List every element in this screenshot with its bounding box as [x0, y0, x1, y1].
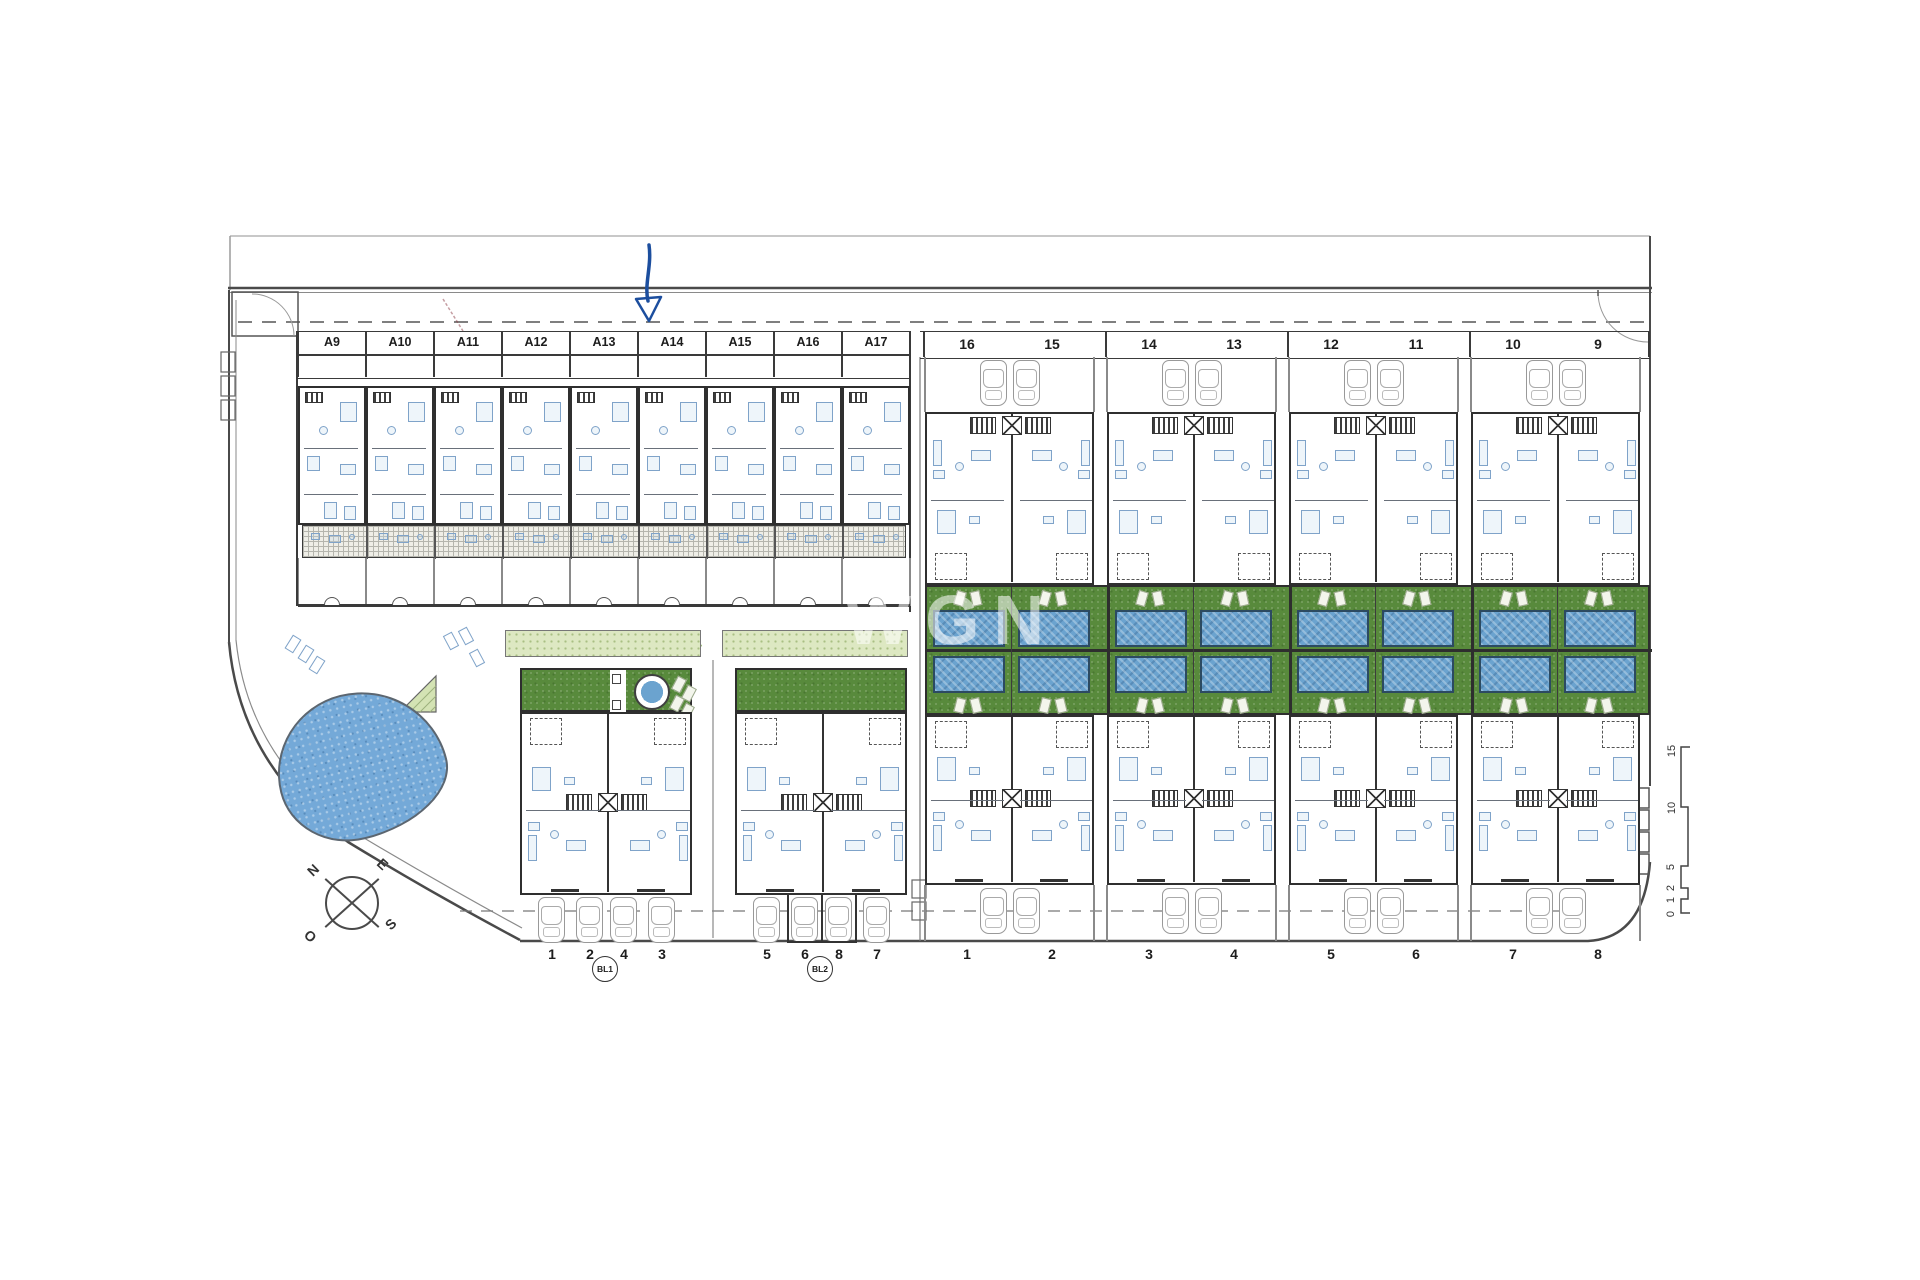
furniture-bed [612, 402, 629, 422]
driveway-wall [1275, 357, 1277, 412]
partition-line [931, 500, 1004, 501]
furniture-terrace [757, 534, 763, 540]
sun-lounger-icon [1584, 590, 1598, 607]
furniture-counter [1078, 812, 1090, 821]
partition-line [831, 810, 905, 811]
furniture-counter [1479, 470, 1491, 479]
band-divider [705, 331, 707, 377]
partition-line [1113, 500, 1186, 501]
band-divider [637, 331, 639, 377]
furniture-bed [392, 502, 405, 519]
furniture-side [1589, 516, 1600, 524]
partition-line [1020, 500, 1093, 501]
furniture-table [1319, 462, 1328, 471]
row-house-unit [434, 386, 502, 525]
furniture-cabinet [851, 456, 864, 471]
furniture-cabinet [783, 456, 796, 471]
partition-line [780, 448, 834, 449]
round-pool [634, 674, 670, 710]
furniture-side [641, 777, 652, 785]
driveway-wall [1093, 885, 1095, 941]
pool [1115, 656, 1187, 693]
furniture-table [765, 830, 774, 839]
furniture-side [1225, 767, 1236, 775]
pool [1297, 610, 1369, 647]
stairs-icon [1152, 417, 1178, 434]
furniture-kitchen [1081, 825, 1090, 851]
garage-door [1319, 879, 1347, 882]
furniture-bed [408, 402, 425, 422]
furniture-bed [680, 402, 697, 422]
furniture-bed [476, 402, 493, 422]
driveway-wall [1093, 357, 1095, 412]
furniture-table [1241, 462, 1250, 471]
car-icon [1162, 888, 1189, 934]
unit-label-a12: A12 [525, 335, 548, 349]
unit-label-bl2-5: 5 [763, 946, 771, 962]
porch-outline [869, 718, 901, 745]
unit-label-13: 13 [1226, 336, 1242, 352]
driveway-wall [1470, 357, 1472, 412]
sun-lounger-icon [1402, 697, 1415, 714]
porch-outline [1299, 553, 1331, 580]
car-icon [1559, 888, 1586, 934]
terrace-divider [570, 526, 572, 559]
furniture-desk [344, 506, 356, 520]
furniture-terrace [485, 534, 491, 540]
stairs-icon [1152, 790, 1178, 807]
partition-line [741, 810, 815, 811]
scale-1: 1 [1665, 897, 1677, 903]
furniture-kitchen [1081, 440, 1090, 466]
unit-label-15: 15 [1044, 336, 1060, 352]
stairs-icon [970, 790, 996, 807]
sun-lounger-icon [1151, 697, 1164, 714]
sun-lounger-icon [969, 697, 982, 714]
furniture-sofa [680, 464, 696, 475]
patio-wall [637, 558, 639, 606]
furniture-terrace [515, 533, 524, 540]
unit-label-rb-4: 4 [1230, 946, 1238, 962]
unit-label-bl2-6: 6 [801, 946, 809, 962]
stairs-icon [1571, 417, 1597, 434]
sun-lounger-icon [1317, 697, 1330, 714]
party-wall [1193, 414, 1195, 582]
watermark: WGN [845, 580, 1058, 660]
furniture-side [1333, 516, 1344, 524]
furniture-sofa [1396, 450, 1416, 461]
driveway-wall [1470, 885, 1472, 941]
scale-5: 5 [1665, 864, 1677, 870]
sun-lounger-icon [1418, 697, 1431, 714]
stairs-icon [441, 392, 459, 403]
furniture-kitchen [1297, 440, 1306, 466]
furniture-sofa [1517, 830, 1537, 841]
stairs-icon [373, 392, 391, 403]
sun-lounger-icon [1135, 590, 1149, 607]
band-divider [433, 331, 435, 377]
furniture-side [1515, 767, 1526, 775]
partition-line [1295, 800, 1368, 801]
furniture-side [969, 516, 980, 524]
porch-outline [1420, 721, 1452, 748]
garden-fence [1471, 587, 1474, 717]
furniture-table [1423, 462, 1432, 471]
furniture-table [657, 830, 666, 839]
unit-label-bl2-7: 7 [873, 946, 881, 962]
furniture-bed [544, 402, 561, 422]
car-icon [1195, 888, 1222, 934]
driveway-wall [1106, 357, 1108, 412]
partition-line [440, 494, 494, 495]
partition-line [1566, 500, 1639, 501]
partition-line [644, 494, 698, 495]
driveway-wall [1288, 357, 1290, 412]
furniture-counter [1442, 812, 1454, 821]
partition-line [848, 448, 902, 449]
furniture-bed [340, 402, 357, 422]
furniture-table [550, 830, 559, 839]
furniture-table [319, 426, 328, 435]
furniture-table [1605, 462, 1614, 471]
unit-label-16: 16 [959, 336, 975, 352]
furniture-terrace [825, 534, 831, 540]
car-icon [1559, 360, 1586, 406]
furniture-counter [933, 470, 945, 479]
furniture-bed [1249, 510, 1268, 534]
furniture-side [1151, 767, 1162, 775]
furniture-table [591, 426, 600, 435]
garden-fence [1107, 587, 1110, 717]
unit-label-a17: A17 [865, 335, 888, 349]
pool [1382, 656, 1454, 693]
furniture-terrace [873, 535, 885, 543]
furniture-kitchen [1115, 440, 1124, 466]
furniture-bed [1301, 757, 1320, 781]
furniture-bed [324, 502, 337, 519]
car-icon [1162, 360, 1189, 406]
sun-lounger-icon [1135, 697, 1148, 714]
car-icon [753, 897, 780, 943]
furniture-counter [891, 822, 903, 831]
party-wall [1011, 414, 1013, 582]
furniture-bed [732, 502, 745, 519]
band-divider [1287, 331, 1289, 357]
car-icon [1344, 360, 1371, 406]
furniture-kitchen [933, 440, 942, 466]
stairs-icon [645, 392, 663, 403]
furniture-sofa [1032, 830, 1052, 841]
house-pair [1107, 412, 1276, 585]
furniture-bed [1613, 510, 1632, 534]
unit-label-rb-1: 1 [963, 946, 971, 962]
sun-lounger-icon [1601, 590, 1614, 607]
furniture-sofa [612, 464, 628, 475]
partition-line [712, 494, 766, 495]
sun-lounger-icon [1237, 590, 1250, 607]
furniture-counter [528, 822, 540, 831]
furniture-desk [480, 506, 492, 520]
pool [1564, 610, 1636, 647]
stair-core-icon [1184, 789, 1204, 808]
unit-label-rb-7: 7 [1509, 946, 1517, 962]
porch-outline [1117, 553, 1149, 580]
furniture-side [1407, 767, 1418, 775]
furniture-table [1241, 820, 1250, 829]
row-house-unit [774, 386, 842, 525]
furniture-kitchen [1479, 440, 1488, 466]
furniture-sofa [748, 464, 764, 475]
garden-fence [1289, 587, 1292, 717]
scale-15: 15 [1666, 745, 1678, 757]
porch-outline [1238, 553, 1270, 580]
furniture-cabinet [307, 456, 320, 471]
unit-label-rb-3: 3 [1145, 946, 1153, 962]
furniture-kitchen [1445, 825, 1454, 851]
furniture-bed [868, 502, 881, 519]
stair-core-icon [1366, 416, 1386, 435]
furniture-desk [820, 506, 832, 520]
garage-door [1501, 879, 1529, 882]
porch-outline [745, 718, 777, 745]
furniture-sofa [1396, 830, 1416, 841]
furniture-terrace [601, 535, 613, 543]
terrace-divider [706, 526, 708, 559]
scale-2: 2 [1665, 885, 1677, 891]
furniture-sofa [884, 464, 900, 475]
unit-label-10: 10 [1505, 336, 1521, 352]
furniture-terrace [669, 535, 681, 543]
row-house-unit [706, 386, 774, 525]
furniture-side [1515, 516, 1526, 524]
garden-unit-fence [1557, 587, 1559, 717]
partition-line [304, 494, 358, 495]
furniture-sofa [1153, 830, 1173, 841]
sun-lounger-icon [1152, 590, 1165, 607]
stairs-icon [305, 392, 323, 403]
row-house-unit [298, 386, 366, 525]
furniture-counter [676, 822, 688, 831]
roof-garden-band [735, 668, 907, 712]
furniture-cabinet [579, 456, 592, 471]
unit-label-rb-5: 5 [1327, 946, 1335, 962]
furniture-sofa [340, 464, 356, 475]
stairs-icon [1334, 790, 1360, 807]
furniture-desk [752, 506, 764, 520]
pool [1564, 656, 1636, 693]
partition-line [848, 494, 902, 495]
unit-label-a10: A10 [389, 335, 412, 349]
furniture-sofa [971, 450, 991, 461]
furniture-side [1589, 767, 1600, 775]
unit-label-a16: A16 [797, 335, 820, 349]
unit-label-11: 11 [1409, 336, 1424, 352]
pool [1479, 610, 1551, 647]
furniture-side [1151, 516, 1162, 524]
furniture-sofa [1517, 450, 1537, 461]
sun-lounger-icon [1054, 697, 1067, 714]
unit-label-bl1-2: 2 [586, 946, 594, 962]
unit-label-a9: A9 [324, 335, 340, 349]
garage-door [1040, 879, 1068, 882]
garage-door [1137, 879, 1165, 882]
band-divider [1648, 331, 1650, 357]
furniture-sofa [476, 464, 492, 475]
car-icon [980, 888, 1007, 934]
driveway-wall [1457, 357, 1459, 412]
partition-line [1202, 500, 1275, 501]
furniture-terrace [465, 535, 477, 543]
porch-outline [1602, 553, 1634, 580]
car-icon [1377, 888, 1404, 934]
apartment-block [735, 712, 907, 895]
furniture-counter [1479, 812, 1491, 821]
furniture-kitchen [743, 835, 752, 861]
furniture-sofa [1153, 450, 1173, 461]
furniture-terrace [447, 533, 456, 540]
unit-label-14: 14 [1141, 336, 1157, 352]
sun-lounger-icon [1333, 697, 1346, 714]
stairs-icon [1516, 790, 1542, 807]
furniture-terrace [329, 535, 341, 543]
porch-outline [654, 718, 686, 745]
pool [1018, 656, 1090, 693]
car-icon [1013, 888, 1040, 934]
pool [1479, 656, 1551, 693]
stairs-icon [566, 794, 592, 811]
car-icon [980, 360, 1007, 406]
furniture-kitchen [679, 835, 688, 861]
sun-lounger-icon [1317, 590, 1331, 607]
porch-outline [1299, 721, 1331, 748]
porch-outline [1056, 721, 1088, 748]
furniture-side [856, 777, 867, 785]
furniture-terrace [379, 533, 388, 540]
furniture-terrace [621, 534, 627, 540]
terrace-strip [302, 525, 906, 558]
car-icon [1195, 360, 1222, 406]
patio-wall [569, 558, 571, 606]
house-pair [1107, 715, 1276, 885]
stairs-icon [836, 794, 862, 811]
patio-wall [365, 558, 367, 606]
sun-lounger-icon [1402, 590, 1416, 607]
unit-label-bl2-8: 8 [835, 946, 843, 962]
garage-box [821, 893, 857, 943]
sun-lounger-icon [1419, 590, 1432, 607]
door-mark [612, 700, 621, 710]
furniture-bed [460, 502, 473, 519]
unit-label-bl1-4: 4 [620, 946, 628, 962]
furniture-bed [528, 502, 541, 519]
furniture-table [795, 426, 804, 435]
driveway-wall [1639, 357, 1641, 412]
furniture-cabinet [715, 456, 728, 471]
partition-line [1020, 800, 1093, 801]
car-icon [863, 897, 890, 943]
partition-line [1113, 800, 1186, 801]
terrace-divider [774, 526, 776, 559]
sun-lounger-icon [1220, 697, 1233, 714]
furniture-table [1605, 820, 1614, 829]
furniture-sofa [1335, 450, 1355, 461]
furniture-side [969, 767, 980, 775]
partition-line [1477, 500, 1550, 501]
furniture-cabinet [511, 456, 524, 471]
porch-outline [1420, 553, 1452, 580]
furniture-table [1319, 820, 1328, 829]
furniture-terrace [417, 534, 423, 540]
band-divider [773, 331, 775, 377]
partition-line [440, 448, 494, 449]
furniture-counter [1297, 812, 1309, 821]
furniture-kitchen [1627, 440, 1636, 466]
furniture-counter [1078, 470, 1090, 479]
furniture-sofa [630, 840, 650, 851]
stairs-icon [1389, 790, 1415, 807]
garden-unit-fence [1193, 587, 1195, 717]
furniture-sofa [544, 464, 560, 475]
furniture-terrace [397, 535, 409, 543]
sun-lounger-icon [1038, 697, 1051, 714]
unit-label-rb-8: 8 [1594, 946, 1602, 962]
terrace-divider [366, 526, 368, 559]
patio-wall [433, 558, 435, 606]
furniture-table [727, 426, 736, 435]
furniture-terrace [737, 535, 749, 543]
driveway-wall [924, 885, 926, 941]
band-divider [569, 331, 571, 377]
furniture-bed [880, 767, 899, 791]
row-house-unit [366, 386, 434, 525]
furniture-table [1137, 820, 1146, 829]
partition-line [304, 448, 358, 449]
house-pair [1471, 412, 1640, 585]
partition-line [526, 810, 600, 811]
furniture-side [779, 777, 790, 785]
furniture-table [1059, 820, 1068, 829]
furniture-cabinet [647, 456, 660, 471]
furniture-sofa [1578, 450, 1598, 461]
garage-door [852, 889, 880, 892]
stairs-icon [1571, 790, 1597, 807]
furniture-table [863, 426, 872, 435]
porch-outline [1481, 721, 1513, 748]
furniture-kitchen [1445, 440, 1454, 466]
furniture-sofa [1335, 830, 1355, 841]
furniture-table [1501, 820, 1510, 829]
furniture-kitchen [894, 835, 903, 861]
band-divider [1469, 331, 1471, 357]
partition-line [508, 448, 562, 449]
furniture-terrace [689, 534, 695, 540]
stair-core-icon [1366, 789, 1386, 808]
furniture-counter [1624, 812, 1636, 821]
furniture-terrace [311, 533, 320, 540]
pool [1382, 610, 1454, 647]
partition-line [576, 448, 630, 449]
sun-lounger-icon [953, 697, 966, 714]
partition-line [1202, 800, 1275, 801]
furniture-table [659, 426, 668, 435]
furniture-bed [937, 757, 956, 781]
furniture-terrace [719, 533, 728, 540]
furniture-sofa [971, 830, 991, 841]
furniture-table [523, 426, 532, 435]
furniture-bed [1431, 510, 1450, 534]
stairs-icon [1207, 790, 1233, 807]
block-edge [296, 331, 298, 606]
